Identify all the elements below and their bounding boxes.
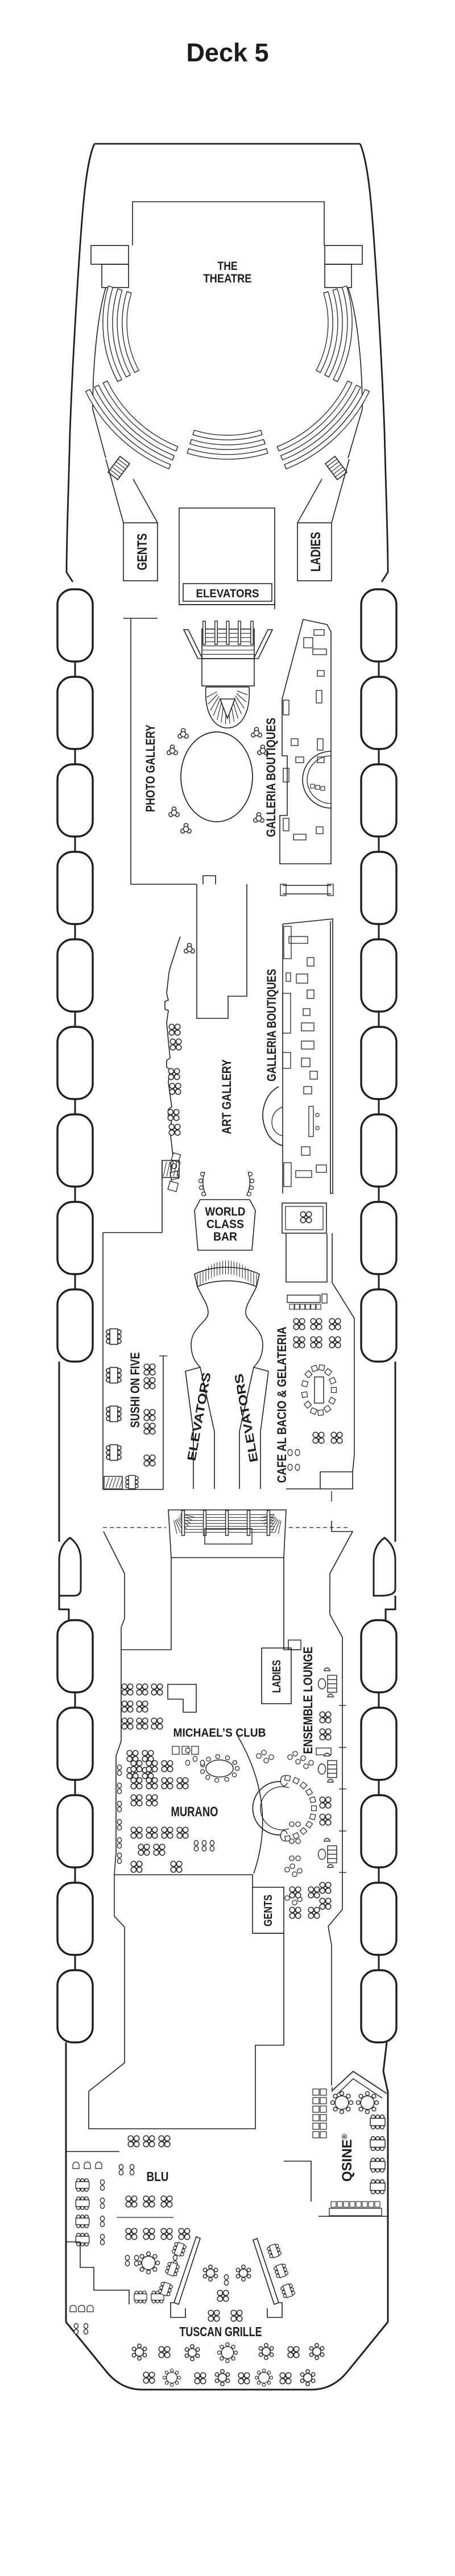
svg-text:GALLERIA BOUTIQUES: GALLERIA BOUTIQUES — [264, 969, 279, 1081]
svg-text:BLU: BLU — [147, 2169, 169, 2184]
svg-text:LADIES: LADIES — [271, 1660, 283, 1693]
svg-text:GENTS: GENTS — [135, 534, 150, 571]
svg-text:ENSEMBLE LOUNGE: ENSEMBLE LOUNGE — [301, 1647, 315, 1754]
svg-text:THEATRE: THEATRE — [204, 272, 252, 285]
svg-text:SUSHI ON FIVE: SUSHI ON FIVE — [128, 1352, 142, 1428]
svg-text:ART GALLERY: ART GALLERY — [220, 1059, 234, 1134]
svg-text:MICHAEL’S CLUB: MICHAEL’S CLUB — [173, 1726, 266, 1739]
svg-text:CAFE AL BACIO & GELATERIA: CAFE AL BACIO & GELATERIA — [275, 1326, 289, 1483]
svg-text:ELEVATORS: ELEVATORS — [196, 588, 259, 600]
svg-text:THE: THE — [218, 260, 238, 273]
svg-text:GALLERIA BOUTIQUES: GALLERIA BOUTIQUES — [264, 718, 278, 837]
svg-text:Deck 5: Deck 5 — [186, 38, 268, 67]
svg-text:WORLD: WORLD — [205, 1205, 246, 1218]
svg-text:MURANO: MURANO — [171, 1804, 218, 1820]
svg-text:TUSCAN GRILLE: TUSCAN GRILLE — [180, 2324, 262, 2339]
svg-text:BAR: BAR — [213, 1230, 237, 1243]
svg-text:QSINE®: QSINE® — [340, 2133, 355, 2182]
svg-text:PHOTO GALLERY: PHOTO GALLERY — [143, 725, 158, 812]
svg-text:LADIES: LADIES — [308, 532, 324, 572]
svg-text:CLASS: CLASS — [206, 1218, 244, 1231]
svg-text:GENTS: GENTS — [262, 1895, 275, 1926]
